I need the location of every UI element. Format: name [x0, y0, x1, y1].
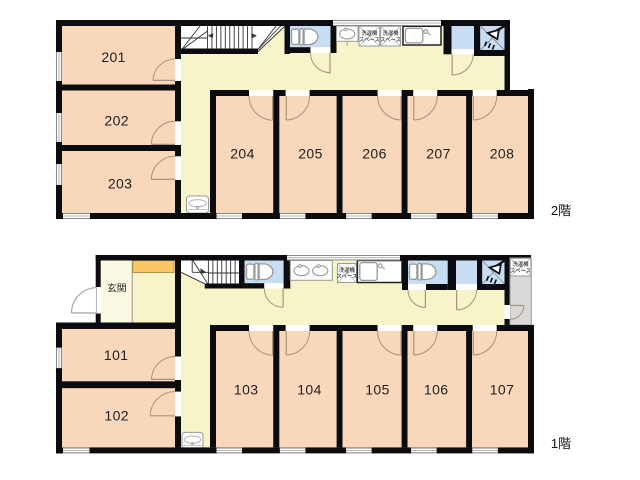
- svg-text:204: 204: [230, 145, 255, 161]
- svg-text:2階: 2階: [551, 203, 571, 218]
- svg-text:206: 206: [362, 145, 387, 161]
- svg-text:洗濯機: 洗濯機: [513, 260, 530, 268]
- svg-text:107: 107: [490, 382, 515, 398]
- svg-text:洗濯機: 洗濯機: [382, 29, 399, 37]
- svg-text:104: 104: [297, 382, 322, 398]
- svg-text:洗濯機: 洗濯機: [339, 266, 356, 274]
- svg-text:101: 101: [104, 347, 129, 363]
- svg-text:スペース: スペース: [336, 273, 357, 280]
- svg-text:208: 208: [490, 145, 515, 161]
- svg-text:205: 205: [298, 145, 323, 161]
- svg-text:203: 203: [108, 176, 133, 192]
- svg-text:スペース: スペース: [380, 36, 401, 43]
- svg-text:106: 106: [424, 382, 449, 398]
- svg-text:103: 103: [234, 382, 259, 398]
- svg-text:105: 105: [365, 382, 390, 398]
- svg-text:207: 207: [426, 145, 451, 161]
- svg-text:201: 201: [101, 49, 126, 65]
- svg-text:スペース: スペース: [359, 36, 380, 43]
- svg-text:スペース: スペース: [510, 267, 531, 274]
- svg-text:202: 202: [104, 113, 129, 129]
- svg-text:洗濯機: 洗濯機: [361, 29, 378, 37]
- svg-text:玄関: 玄関: [107, 282, 127, 295]
- svg-text:102: 102: [104, 408, 129, 424]
- svg-text:1階: 1階: [551, 436, 571, 451]
